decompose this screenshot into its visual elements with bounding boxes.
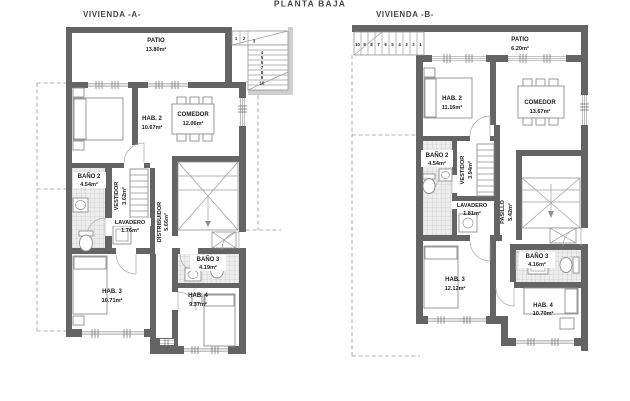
sink-bano2-b bbox=[439, 169, 452, 181]
floor-plan-sheet: PLANTA BAJA VIVIENDA -A- VIVIENDA -B- bbox=[0, 0, 630, 401]
a-vestidor-area: 3.62m² bbox=[121, 187, 128, 205]
svg-text:10: 10 bbox=[260, 81, 265, 86]
b-comedor-area: 13.67m² bbox=[530, 108, 551, 115]
a-lavadero-name: LAVADERO bbox=[115, 220, 146, 226]
b-bano3-name: BAÑO 3 bbox=[526, 253, 549, 260]
svg-text:10: 10 bbox=[355, 42, 360, 47]
sink-bano2-a bbox=[73, 198, 88, 212]
b-lavadero-area: 1.81m² bbox=[463, 210, 481, 217]
bed-hab2-a bbox=[73, 88, 123, 150]
a-hab4-name: HAB. 4 bbox=[188, 293, 208, 299]
b-bano2-area: 4.54m² bbox=[428, 160, 446, 167]
b-bano3-area: 4.16m² bbox=[528, 261, 546, 268]
a-bano3-name: BAÑO 3 bbox=[197, 256, 220, 263]
b-bano2-name: BAÑO 2 bbox=[426, 152, 449, 159]
a-patio-area: 13.80m² bbox=[146, 46, 167, 53]
a-lavadero-area: 1.76m² bbox=[121, 227, 139, 234]
floor-plan-drawing: PLANTA BAJA VIVIENDA -A- VIVIENDA -B- bbox=[0, 0, 630, 401]
a-distribuidor-area: 5.66m² bbox=[163, 213, 170, 231]
toilet-bano2-a bbox=[79, 231, 93, 251]
b-hab3-name: HAB. 3 bbox=[445, 277, 465, 283]
closet-vestidor-a bbox=[130, 169, 148, 221]
closet-vestidor-b bbox=[477, 144, 494, 196]
b-patio-name: PATIO bbox=[511, 37, 529, 43]
a-vestidor-name: VESTIDOR bbox=[114, 182, 120, 211]
plan-vivienda-b: 10 9 8 7 6 5 4 3 2 1 bbox=[352, 25, 589, 356]
plan-a-entry-step bbox=[212, 232, 236, 248]
b-pasillo-name: PASILLO bbox=[500, 199, 506, 223]
plan-b-boundary-dashes bbox=[352, 55, 420, 356]
b-hab4-name: HAB. 4 bbox=[533, 303, 553, 309]
plan-b-exterior-stair: 10 9 8 7 6 5 4 3 2 1 bbox=[354, 32, 424, 55]
plan-a-title: VIVIENDA -A- bbox=[83, 10, 141, 19]
plan-b-title: VIVIENDA -B- bbox=[376, 10, 434, 19]
a-hab4-area: 9.37m² bbox=[189, 301, 207, 308]
plan-a-interior-stair bbox=[178, 162, 238, 230]
b-lavadero-name: LAVADERO bbox=[457, 203, 488, 209]
b-vestidor-name: VESTIDOR bbox=[460, 156, 466, 185]
toilet-bano3-b bbox=[560, 257, 579, 273]
b-vestidor-area: 3.94m² bbox=[467, 161, 474, 179]
a-hab2-area: 10.67m² bbox=[142, 124, 163, 131]
b-pasillo-area: 5.42m² bbox=[507, 203, 514, 221]
a-comedor-name: COMEDOR bbox=[177, 112, 209, 118]
a-bano2-area: 4.54m² bbox=[80, 181, 98, 188]
dining-table-a bbox=[172, 97, 214, 141]
b-comedor-name: COMEDOR bbox=[524, 100, 556, 106]
a-comedor-area: 12.06m² bbox=[183, 120, 204, 127]
plan-b-interior-stair bbox=[522, 178, 580, 228]
a-patio-name: PATIO bbox=[147, 38, 165, 44]
a-hab3-name: HAB. 3 bbox=[102, 289, 122, 295]
toilet-bano2-b bbox=[423, 174, 435, 194]
sheet-title: PLANTA BAJA bbox=[274, 0, 346, 9]
b-hab3-area: 12.12m² bbox=[445, 285, 466, 292]
a-bano3-area: 4.19m² bbox=[199, 264, 217, 271]
a-bano2-name: BAÑO 2 bbox=[78, 173, 101, 180]
plan-vivienda-a: 1 2 3 4 5 6 7 8 9 10 bbox=[37, 27, 293, 354]
a-hab2-name: HAB. 2 bbox=[142, 116, 162, 122]
b-hab2-name: HAB. 2 bbox=[442, 96, 462, 102]
b-hab2-area: 11.16m² bbox=[442, 104, 463, 111]
b-patio-area: 6.20m² bbox=[511, 45, 529, 52]
a-hab3-area: 10.71m² bbox=[102, 297, 123, 304]
b-hab4-area: 10.70m² bbox=[533, 310, 554, 317]
a-distribuidor-name: DISTRIBUIDOR bbox=[157, 202, 163, 242]
